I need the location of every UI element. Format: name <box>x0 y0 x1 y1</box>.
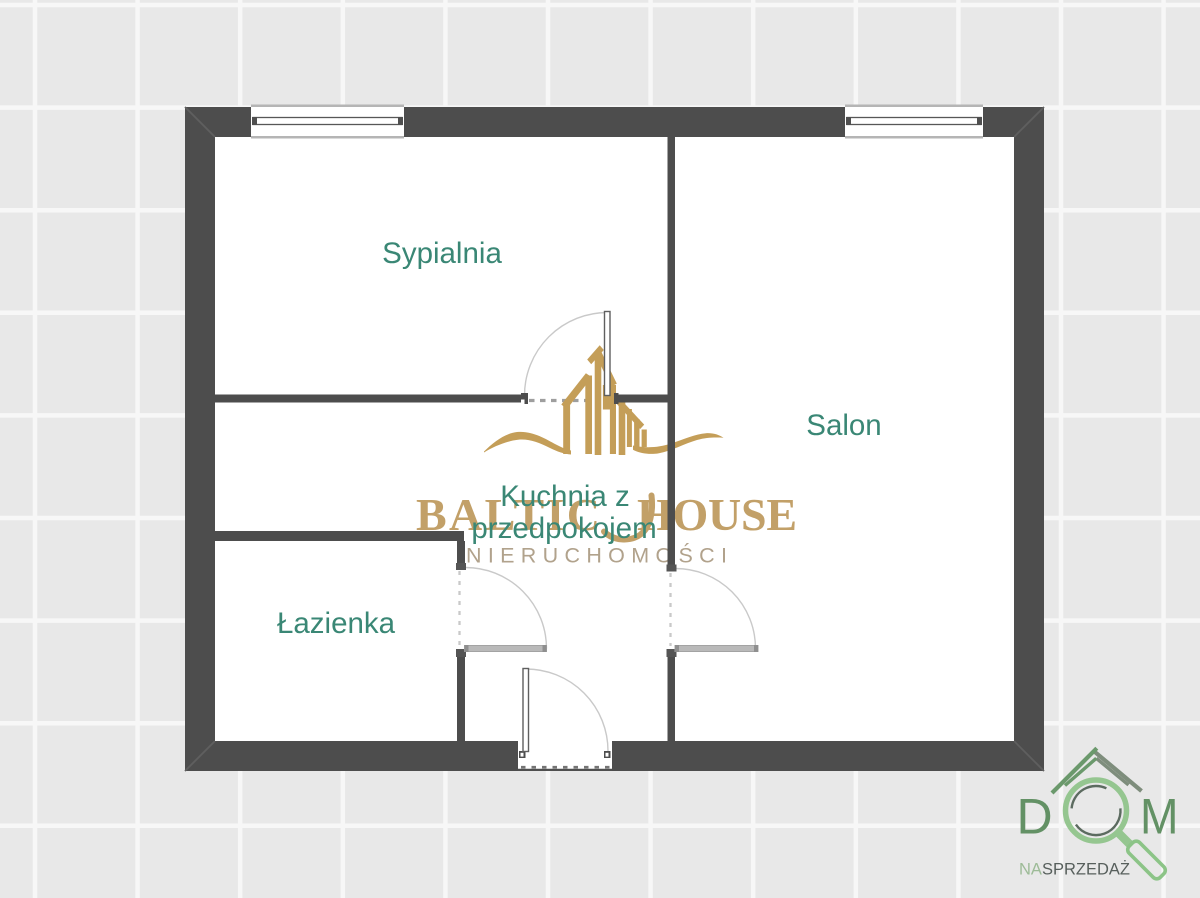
svg-text:SPRZEDAŻ: SPRZEDAŻ <box>1042 860 1130 879</box>
svg-text:HOUSE: HOUSE <box>637 489 798 540</box>
svg-text:Kuchnia z: Kuchnia z <box>500 480 630 513</box>
svg-text:NIERUCHOMOŚCI: NIERUCHOMOŚCI <box>466 543 734 568</box>
svg-text:M: M <box>1140 789 1179 845</box>
svg-text:przedpokojem: przedpokojem <box>471 512 656 545</box>
svg-text:Salon: Salon <box>806 409 881 442</box>
svg-text:Łazienka: Łazienka <box>277 607 396 640</box>
svg-text:D: D <box>1017 789 1053 845</box>
svg-text:NA: NA <box>1019 861 1042 879</box>
svg-text:Sypialnia: Sypialnia <box>382 237 502 270</box>
